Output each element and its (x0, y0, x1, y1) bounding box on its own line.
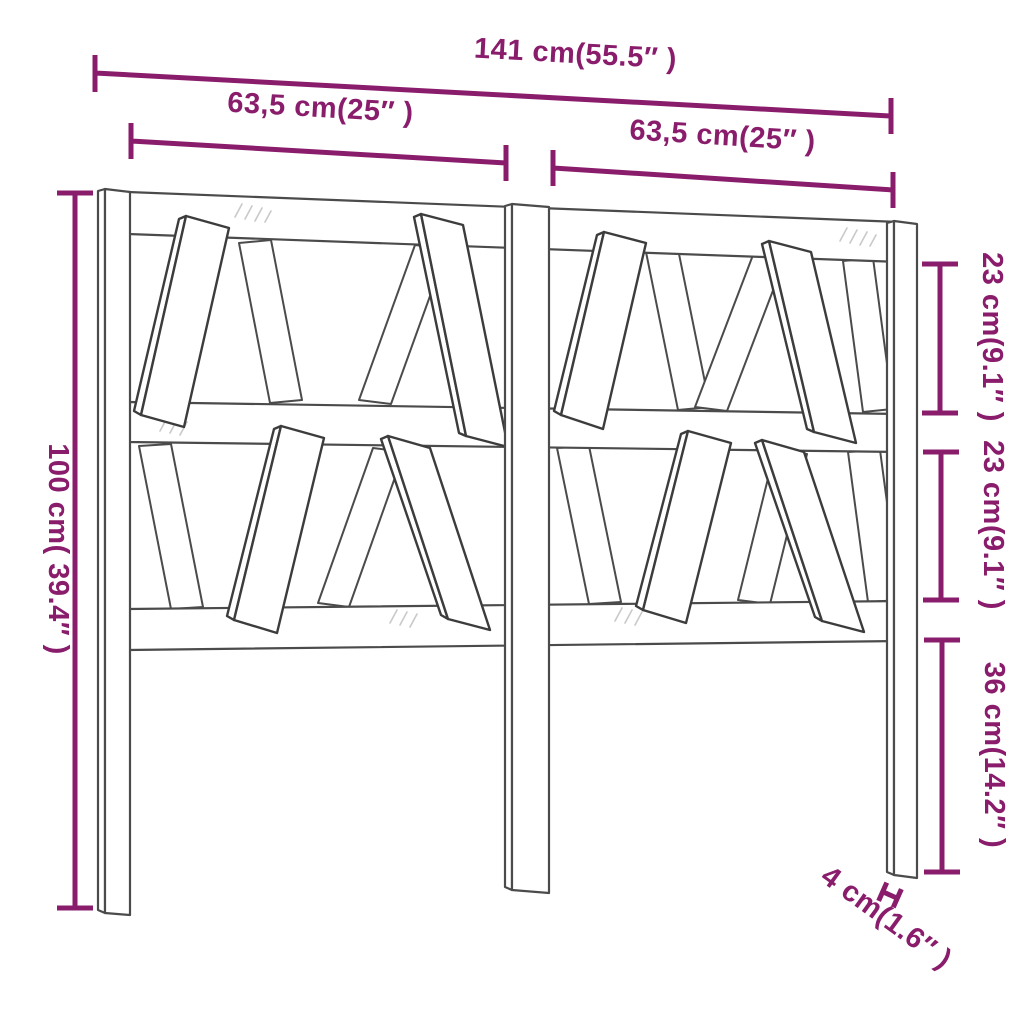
dimension-label-upper-panel-height: 23 cm(9.1″ ) (976, 252, 1008, 422)
dimension-label-overall-width: 141 cm(55.5″ ) (473, 33, 677, 76)
dimension-leg-height: 36 cm(14.2″ ) (924, 640, 1010, 872)
center-post (505, 204, 549, 893)
dimension-label-leg-height: 36 cm(14.2″ ) (978, 662, 1010, 848)
left-post (98, 189, 130, 915)
dimension-overall-height: 100 cm( 39.4″ ) (42, 193, 93, 908)
left-post-front (105, 189, 130, 915)
center-post-front (512, 204, 549, 893)
back-slat (557, 446, 621, 604)
dimension-line (131, 123, 506, 181)
dimension-line (924, 640, 960, 872)
dimension-line (553, 150, 893, 208)
dimension-label-lower-panel-height: 23 cm(9.1″ ) (977, 440, 1009, 610)
back-slat (139, 444, 203, 609)
right-post (887, 221, 917, 878)
dimension-label-overall-height: 100 cm( 39.4″ ) (42, 443, 74, 655)
front-slat (234, 426, 324, 633)
dimension-label-leg-thickness: 4 cm(1.6″ ) (815, 860, 958, 976)
dimension-left-panel-width: 63,5 cm(25″ ) (131, 87, 506, 181)
headboard-dimension-diagram: 141 cm(55.5″ ) 63,5 cm(25″ ) 63,5 cm(25″… (0, 0, 1024, 1024)
dimension-leg-thickness: 4 cm(1.6″ ) (815, 860, 958, 976)
headboard-drawing (98, 189, 917, 915)
dimension-lower-panel-height: 23 cm(9.1″ ) (923, 440, 1009, 610)
dimension-line (923, 452, 959, 600)
dimension-overall-width: 141 cm(55.5″ ) (95, 33, 891, 134)
dimension-label-left-panel-width: 63,5 cm(25″ ) (227, 87, 415, 130)
dimension-line (922, 264, 958, 413)
dimension-right-panel-width: 63,5 cm(25″ ) (553, 114, 893, 208)
back-slat (646, 249, 710, 410)
back-slat (239, 240, 302, 403)
back-slat (843, 258, 893, 412)
right-post-front (894, 221, 917, 878)
dimension-upper-panel-height: 23 cm(9.1″ ) (922, 252, 1008, 422)
dimension-label-right-panel-width: 63,5 cm(25″ ) (629, 114, 817, 158)
